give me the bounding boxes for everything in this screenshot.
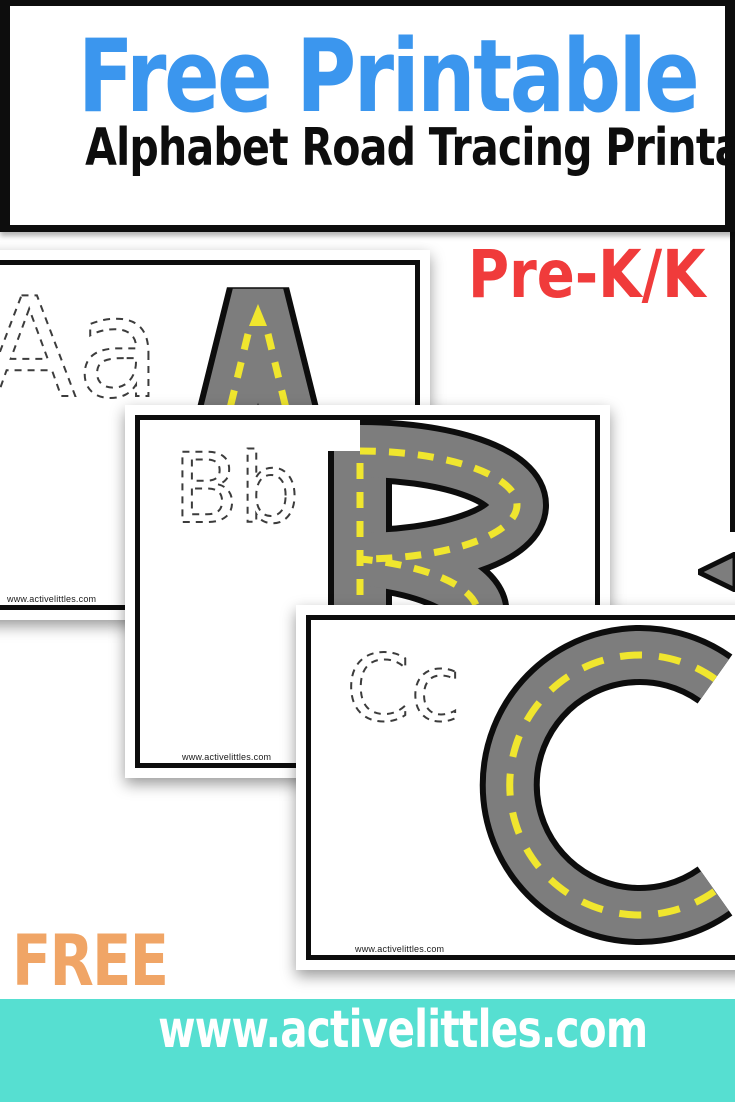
trace-letters-cc: Cc	[346, 635, 461, 742]
website-banner: www.activelittles.com	[0, 999, 735, 1102]
partial-road-letter-fragment	[698, 552, 735, 592]
free-label: FREE	[12, 926, 167, 996]
card-c-art: Cc C www.activelittles.com	[296, 605, 735, 970]
card-a-watermark: www.activelittles.com	[6, 594, 96, 604]
printable-card-c: Cc C www.activelittles.com	[296, 605, 735, 970]
page-subtitle: Alphabet Road Tracing Printable	[85, 122, 650, 174]
right-border-strip	[730, 232, 735, 532]
title-section: Free Printable Alphabet Road Tracing Pri…	[0, 0, 735, 232]
card-c-watermark: www.activelittles.com	[354, 944, 444, 954]
road-letter-c: C	[510, 655, 715, 915]
website-url: www.activelittles.com	[158, 1004, 647, 1056]
grade-level-badge: Pre-K/K	[468, 242, 706, 308]
pin-graphic: Free Printable Alphabet Road Tracing Pri…	[0, 0, 735, 1102]
card-b-watermark: www.activelittles.com	[181, 752, 271, 762]
trace-letters-bb: Bb	[173, 433, 300, 545]
page-title: Free Printable	[78, 26, 657, 127]
